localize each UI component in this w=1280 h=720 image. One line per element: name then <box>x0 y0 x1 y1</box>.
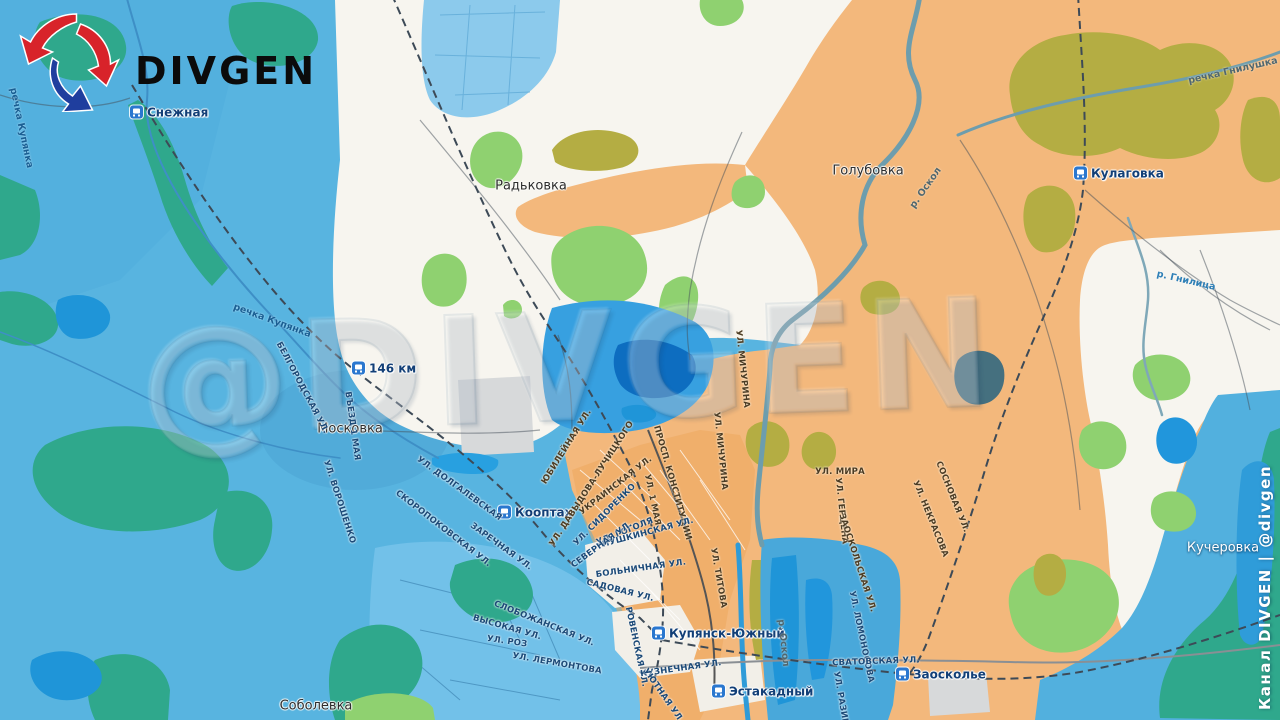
settlement-label: Голубовка <box>832 165 903 178</box>
river-label: р. Оскол <box>909 166 944 210</box>
logo-red-arrow-right <box>77 24 119 86</box>
logo-blue-arrow <box>50 58 92 112</box>
street-label: Юбилейная ул. <box>541 408 594 486</box>
street-label: ул. Некрасова <box>911 480 949 559</box>
street-label: ул. Титова <box>709 547 728 608</box>
station-name: Купянск-Южный <box>669 627 785 639</box>
street-label: ул. Мичурина <box>734 330 751 409</box>
railway-station-icon <box>652 627 665 640</box>
station-name: Заосколье <box>913 668 986 680</box>
divgen-logo-icon <box>16 12 121 112</box>
street-label: Белгородская ул. <box>274 341 330 435</box>
street-label: Заречная ул. <box>469 522 534 572</box>
station-label: 146 км <box>352 362 416 375</box>
street-label: Сватовская ул. <box>832 656 920 668</box>
station-name: 146 км <box>369 362 416 374</box>
channel-credit: Канал DIVGEN | @divgen <box>1256 465 1274 710</box>
settlement-label: Радьковка <box>495 180 567 193</box>
river-label: речка Купянка <box>232 303 312 340</box>
street-label: Сосновая ул. <box>934 460 970 534</box>
street-label: ул. Мичурина <box>712 412 729 491</box>
railway-station-icon <box>896 668 909 681</box>
street-label: ул. Разина <box>831 671 850 720</box>
station-name: Кулаговка <box>1091 167 1164 179</box>
station-name: Эстакадный <box>729 685 813 697</box>
street-label: ул. Мира <box>815 468 865 477</box>
station-label: Кооптах <box>498 506 572 519</box>
street-label: Больничная ул. <box>595 558 686 579</box>
map-surface[interactable]: @DIVGEN Снежная146 кмКооптахКупянск-Южны… <box>0 0 1280 720</box>
divgen-logo-text: DIVGEN <box>135 49 317 93</box>
station-label: Купянск-Южный <box>652 627 785 640</box>
railway-station-icon <box>712 685 725 698</box>
railway-station-icon <box>352 362 365 375</box>
station-label: Эстакадный <box>712 685 813 698</box>
station-label: Заосколье <box>896 668 986 681</box>
river-label: р. Гнилица <box>1156 270 1217 293</box>
railway-station-icon <box>1074 167 1087 180</box>
street-label: Садовая ул. <box>585 579 654 604</box>
divgen-logo: DIVGEN <box>16 12 317 112</box>
logo-red-arrow-left <box>21 14 77 64</box>
settlement-label: Соболевка <box>280 700 353 713</box>
station-label: Кулаговка <box>1074 167 1164 180</box>
settlement-label: Кучеровка <box>1187 542 1259 555</box>
river-label: речка Гнилушка <box>1187 56 1278 86</box>
street-label: ул. Лермонтова <box>512 652 603 676</box>
river-label: р. Оскол <box>776 619 790 667</box>
street-label: ул. Ворошенко <box>321 459 356 545</box>
